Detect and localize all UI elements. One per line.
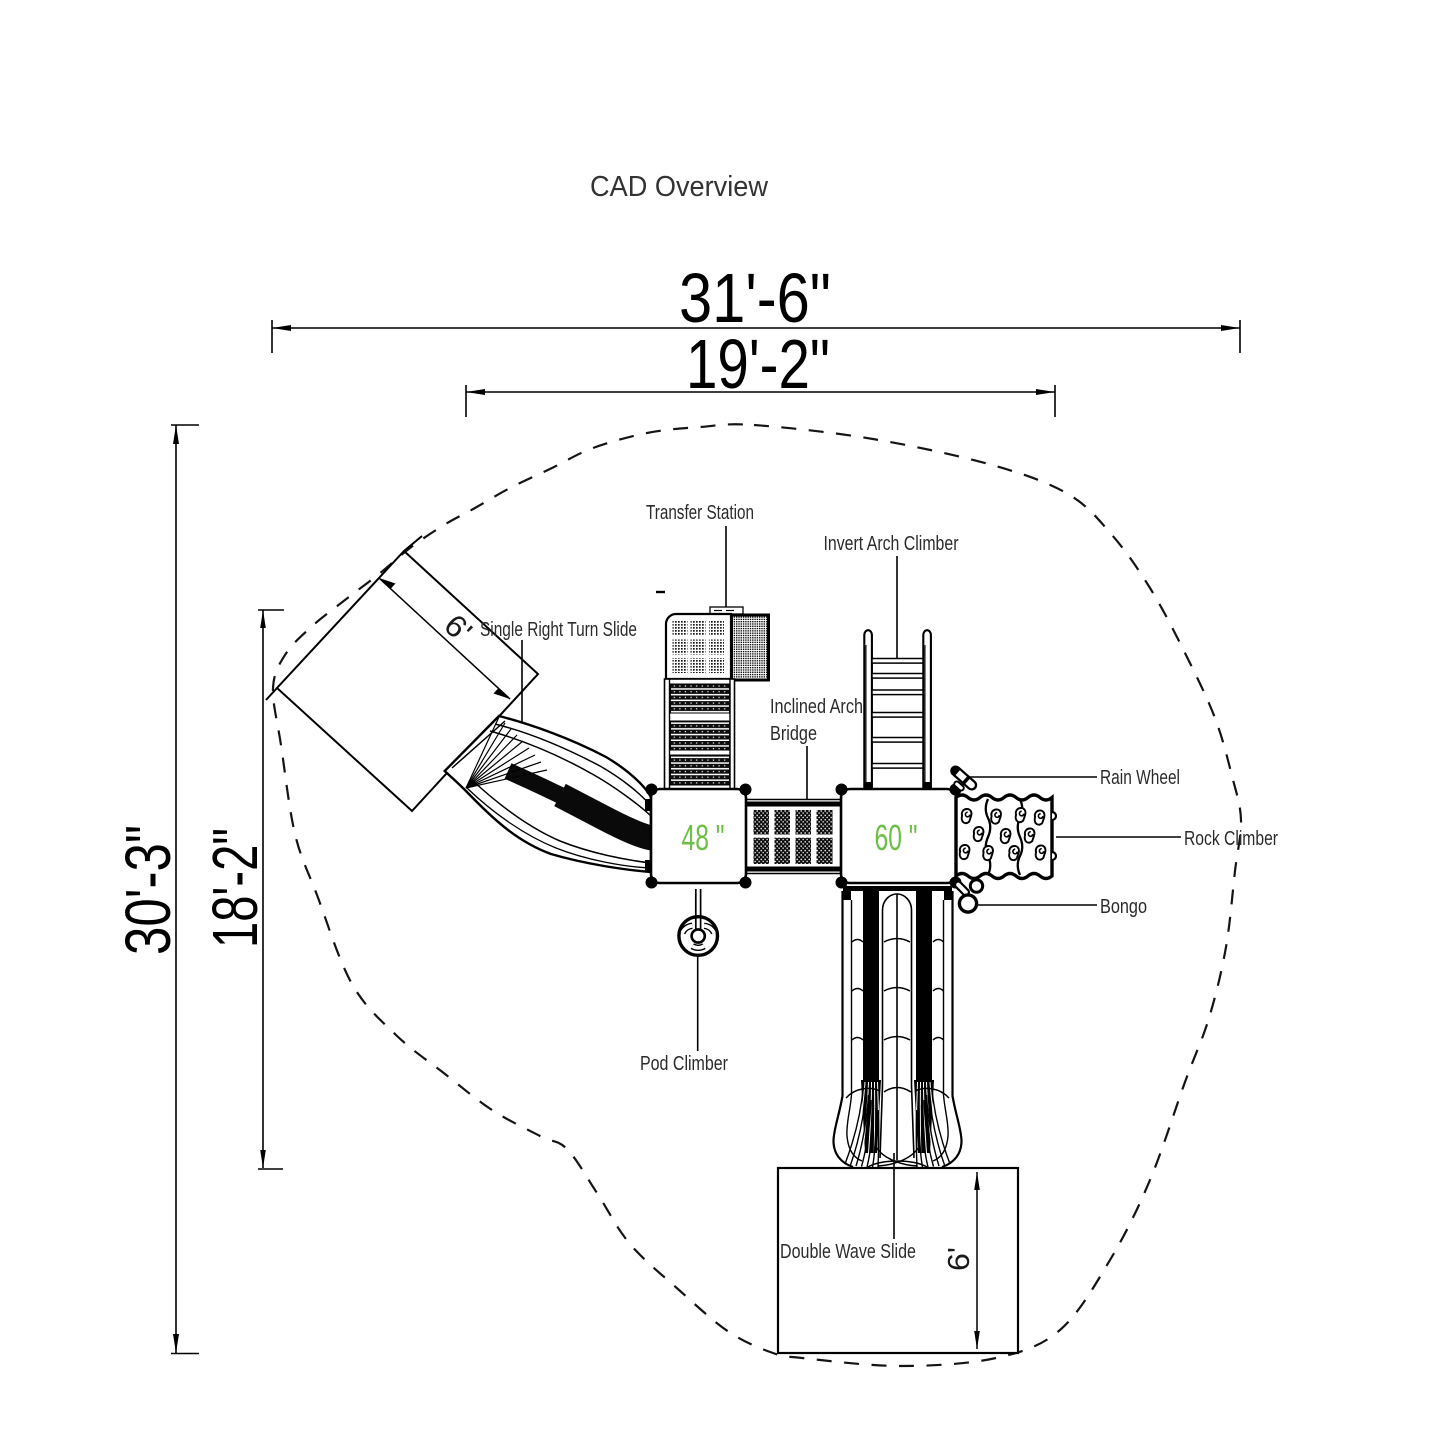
svg-text:6': 6' bbox=[941, 1247, 976, 1271]
svg-text:Inclined Arch: Inclined Arch bbox=[770, 696, 863, 718]
svg-text:Invert Arch Climber: Invert Arch Climber bbox=[824, 533, 959, 555]
svg-text:30'-3": 30'-3" bbox=[112, 825, 184, 955]
svg-text:Double Wave Slide: Double Wave Slide bbox=[780, 1241, 916, 1263]
svg-text:Transfer Station: Transfer Station bbox=[646, 502, 754, 524]
svg-text:Single Right Turn Slide: Single Right Turn Slide bbox=[480, 619, 637, 641]
svg-text:18'-2": 18'-2" bbox=[199, 828, 271, 948]
svg-text:60 ": 60 " bbox=[875, 817, 918, 858]
svg-text:48 ": 48 " bbox=[682, 817, 725, 858]
svg-text:Bridge: Bridge bbox=[770, 723, 817, 745]
svg-text:Bongo: Bongo bbox=[1100, 896, 1147, 918]
svg-text:CAD Overview: CAD Overview bbox=[590, 171, 769, 203]
svg-text:Pod Climber: Pod Climber bbox=[640, 1053, 728, 1075]
svg-text:19'-2": 19'-2" bbox=[686, 325, 830, 403]
svg-text:Rock Climber: Rock Climber bbox=[1184, 828, 1278, 850]
svg-text:Rain Wheel: Rain Wheel bbox=[1100, 767, 1180, 789]
